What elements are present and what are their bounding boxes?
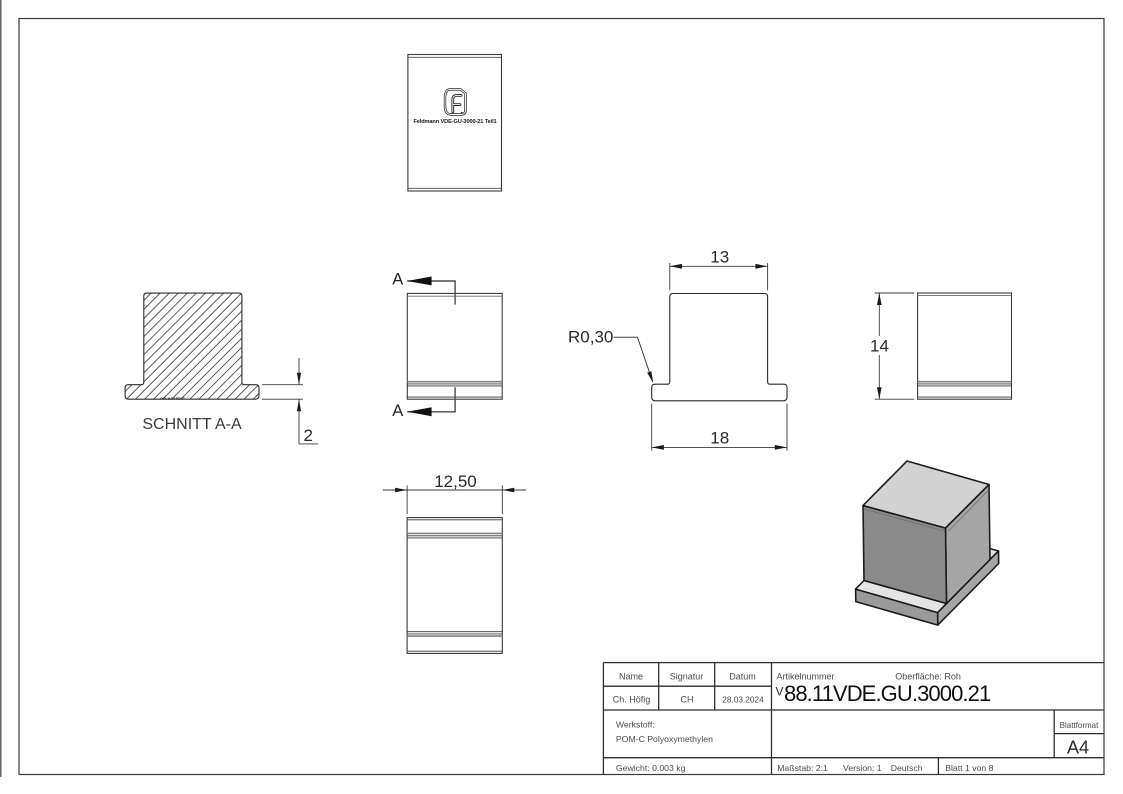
svg-text:Werkstoff:: Werkstoff: xyxy=(616,719,655,729)
svg-text:V: V xyxy=(776,685,784,699)
svg-text:Deutsch: Deutsch xyxy=(891,763,923,773)
svg-text:Name: Name xyxy=(619,672,643,682)
svg-text:A: A xyxy=(392,271,403,289)
svg-text:POM-C Polyoxymethylen: POM-C Polyoxymethylen xyxy=(616,734,713,744)
svg-text:Blatt 1 von 8: Blatt 1 von 8 xyxy=(945,763,993,773)
svg-text:Signatur: Signatur xyxy=(670,672,704,682)
svg-text:2: 2 xyxy=(304,426,313,445)
svg-text:A: A xyxy=(392,402,403,420)
svg-text:R0,30: R0,30 xyxy=(568,328,613,347)
svg-text:14: 14 xyxy=(870,337,889,356)
svg-text:88.11VDE.GU.3000.21: 88.11VDE.GU.3000.21 xyxy=(784,681,991,706)
svg-text:28.03.2024: 28.03.2024 xyxy=(722,695,764,705)
svg-text:Blattformat: Blattformat xyxy=(1060,721,1099,730)
svg-text:Datum: Datum xyxy=(729,672,756,682)
svg-text:13: 13 xyxy=(710,248,729,267)
svg-text:Maßstab: 2:1: Maßstab: 2:1 xyxy=(777,763,828,773)
svg-text:SCHNITT A-A: SCHNITT A-A xyxy=(142,416,242,433)
svg-text:18: 18 xyxy=(710,429,729,448)
svg-text:Gewicht: 0.003 kg: Gewicht: 0.003 kg xyxy=(616,763,686,773)
svg-text:CH: CH xyxy=(681,695,694,705)
svg-text:Version: 1: Version: 1 xyxy=(843,763,882,773)
svg-text:Feldmann VDE-GU-3000-21 Teil1: Feldmann VDE-GU-3000-21 Teil1 xyxy=(413,119,496,125)
svg-text:A4: A4 xyxy=(1067,738,1089,758)
svg-text:Ch. Höfig: Ch. Höfig xyxy=(613,695,651,705)
svg-text:12,50: 12,50 xyxy=(434,472,477,491)
